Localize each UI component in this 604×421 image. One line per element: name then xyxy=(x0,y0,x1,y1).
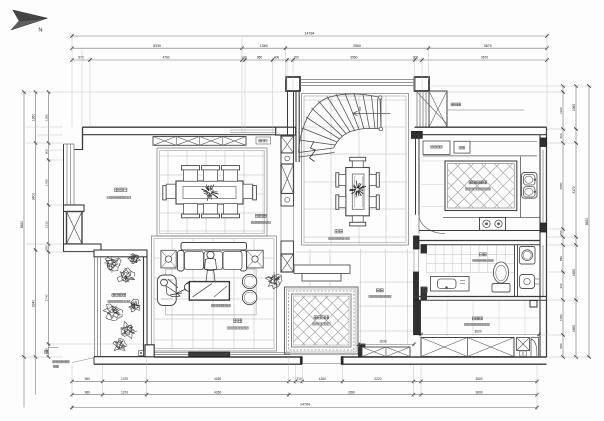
svg-text:2740: 2740 xyxy=(44,294,48,301)
svg-text:280: 280 xyxy=(44,245,48,250)
svg-text:3170: 3170 xyxy=(572,186,576,193)
svg-text:400: 400 xyxy=(559,283,563,288)
svg-text:1630: 1630 xyxy=(379,340,387,344)
svg-text:1370: 1370 xyxy=(121,390,128,394)
svg-text:3670: 3670 xyxy=(481,56,488,60)
svg-text:14784: 14784 xyxy=(305,32,315,36)
svg-text:3340: 3340 xyxy=(31,300,35,308)
svg-text:210: 210 xyxy=(296,377,302,381)
svg-text:14784: 14784 xyxy=(300,402,310,406)
svg-text:8820: 8820 xyxy=(585,218,589,226)
svg-text:1210: 1210 xyxy=(44,221,48,228)
svg-text:850: 850 xyxy=(257,56,263,60)
svg-text:1360: 1360 xyxy=(31,114,35,122)
svg-text:4260: 4260 xyxy=(214,390,221,394)
svg-text:1160: 1160 xyxy=(559,107,563,114)
svg-text:1650: 1650 xyxy=(572,269,576,276)
svg-text:2580: 2580 xyxy=(559,182,563,189)
svg-text:2220: 2220 xyxy=(374,377,381,381)
svg-text:3390: 3390 xyxy=(348,390,355,394)
svg-text:1850: 1850 xyxy=(572,325,576,332)
svg-text:3600: 3600 xyxy=(475,377,482,381)
svg-text:1360: 1360 xyxy=(44,114,48,121)
svg-text:N: N xyxy=(38,28,42,34)
svg-text:570: 570 xyxy=(78,56,84,60)
svg-text:1050: 1050 xyxy=(559,314,563,321)
svg-text:960: 960 xyxy=(85,377,91,381)
svg-text:200: 200 xyxy=(294,56,300,60)
svg-text:4760: 4760 xyxy=(162,56,169,60)
svg-text:250: 250 xyxy=(559,230,563,235)
svg-text:580: 580 xyxy=(559,343,563,348)
svg-text:1360: 1360 xyxy=(260,44,268,48)
svg-text:3600: 3600 xyxy=(475,390,482,394)
svg-text:4260: 4260 xyxy=(214,377,221,381)
svg-text:960: 960 xyxy=(85,390,91,394)
svg-text:300: 300 xyxy=(559,133,563,138)
svg-text:3670: 3670 xyxy=(484,44,492,48)
svg-text:1260: 1260 xyxy=(319,377,326,381)
svg-text:5330: 5330 xyxy=(153,44,161,48)
svg-text:1360: 1360 xyxy=(572,104,576,111)
svg-text:1750: 1750 xyxy=(44,179,48,186)
svg-text:400: 400 xyxy=(274,56,280,60)
svg-text:8820: 8820 xyxy=(20,221,24,229)
svg-text:850: 850 xyxy=(559,256,563,261)
svg-text:1370: 1370 xyxy=(121,377,128,381)
svg-text:3600: 3600 xyxy=(474,329,482,333)
svg-text:200: 200 xyxy=(413,56,419,60)
svg-text:3960: 3960 xyxy=(353,44,361,48)
svg-text:3560: 3560 xyxy=(350,56,357,60)
svg-text:3400: 3400 xyxy=(31,193,35,201)
svg-text:500: 500 xyxy=(44,149,48,154)
